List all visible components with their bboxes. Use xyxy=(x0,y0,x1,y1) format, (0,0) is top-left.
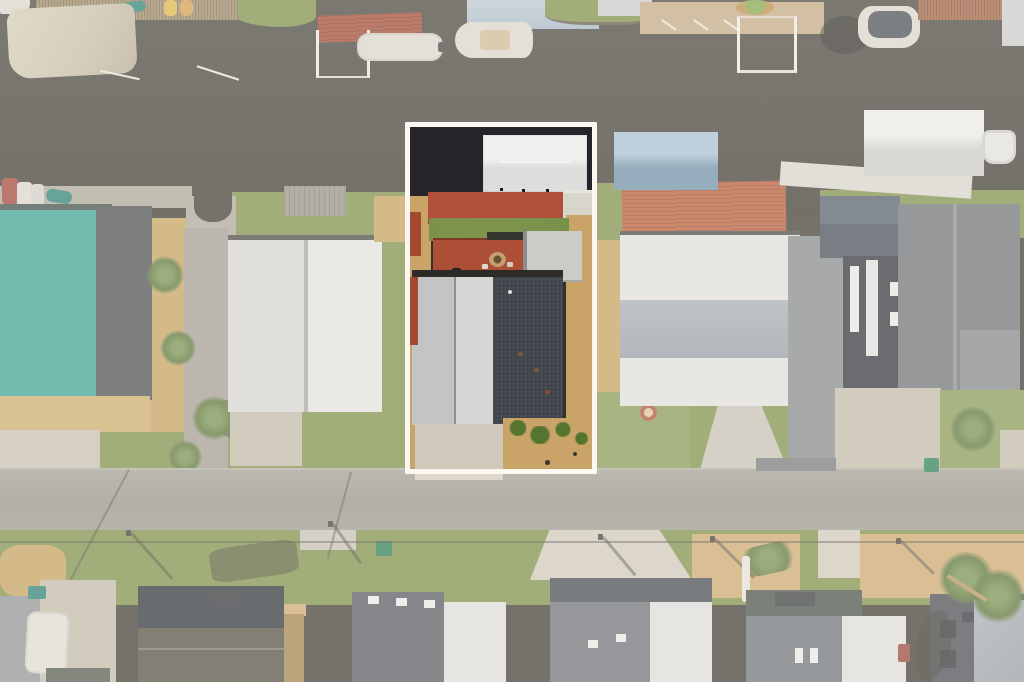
street xyxy=(0,468,1024,532)
white-house-ribbed-section xyxy=(228,240,304,412)
pad-bottom-left-north xyxy=(0,430,100,470)
white-boathouse-shading xyxy=(864,110,984,176)
parked-car-white-1 xyxy=(17,182,32,206)
blue-roof-shading xyxy=(614,132,718,190)
paddleboard-orange xyxy=(180,0,193,16)
rust-dock-texture xyxy=(918,0,1012,20)
house4-white-metal-roof xyxy=(650,602,712,682)
modern-house-window-strip-1 xyxy=(850,266,859,332)
house2-shingle-roof xyxy=(138,628,284,682)
house5-window-2 xyxy=(810,648,818,663)
house5-shingle-roof xyxy=(746,616,842,682)
tan-wall-band xyxy=(0,396,150,434)
gray-building-top-right xyxy=(1002,0,1024,46)
palm-tree-left-1 xyxy=(146,256,184,294)
gravel-apron-north xyxy=(756,458,836,471)
white-gable-house-bottom xyxy=(620,358,800,406)
gray-shingle-lower-right xyxy=(960,330,1020,394)
house3-skylight-3 xyxy=(424,600,435,608)
white-gable-house-top xyxy=(620,235,800,300)
pontoon-motor xyxy=(438,42,446,52)
house5-window-1 xyxy=(795,648,803,663)
house3-white-metal-roof xyxy=(444,602,506,682)
house5-solar-panel xyxy=(775,592,815,606)
white-gable-house-mid xyxy=(620,300,800,358)
palm-far-right xyxy=(950,406,996,452)
parked-car-red xyxy=(2,178,18,204)
house3-skylight-2 xyxy=(396,598,407,606)
sidewalk-stub-right xyxy=(1000,430,1024,470)
house4-shingle-roof xyxy=(550,602,650,682)
white-house-walkway xyxy=(230,412,302,466)
house5-white-metal-roof xyxy=(842,616,906,682)
green-bin-south xyxy=(376,541,392,556)
firepit-table-top xyxy=(736,0,774,15)
white-house-smooth-section xyxy=(304,240,382,412)
modern-house-gable xyxy=(820,196,900,258)
firepit-lawn xyxy=(640,404,657,421)
teal-bin-bottom-left xyxy=(28,586,46,599)
sand-notch-left-of-parcel xyxy=(374,196,405,242)
empty-boatlift-frame xyxy=(737,16,797,73)
boat-on-lift-right xyxy=(982,130,1016,164)
construction-building xyxy=(96,206,152,400)
red-object xyxy=(898,644,910,662)
paddleboard-yellow xyxy=(164,0,177,16)
weathered-deck-texture xyxy=(284,186,346,216)
house2-car xyxy=(205,590,247,607)
green-bin-north xyxy=(924,458,939,472)
property-highlight-outline xyxy=(405,122,597,474)
house3-skylight-1 xyxy=(368,596,379,604)
modern-house-window-strip-2 xyxy=(866,260,878,356)
house4-vent-2 xyxy=(616,634,626,642)
gray-shingle-ridge xyxy=(953,204,957,394)
dark-roof-strip-bottom-left xyxy=(46,668,110,682)
house2-wooden-stairs xyxy=(284,614,304,682)
bimini-top xyxy=(868,11,912,38)
house4-dark-band xyxy=(550,578,712,604)
pontoon-boat xyxy=(357,33,443,61)
white-rv xyxy=(24,611,69,675)
house2-ridge xyxy=(138,648,284,650)
power-wire-horizontal xyxy=(0,541,1024,543)
ramp-water-tongue xyxy=(194,188,232,222)
boat-canvas-awning xyxy=(6,3,137,80)
ttop-canopy xyxy=(480,30,510,50)
house4-vent-1 xyxy=(588,640,598,648)
parked-car-white-2 xyxy=(31,184,44,206)
driveway-south-2 xyxy=(818,530,860,578)
aerial-photo xyxy=(0,0,1024,682)
palm-tree-left-2 xyxy=(160,330,196,366)
